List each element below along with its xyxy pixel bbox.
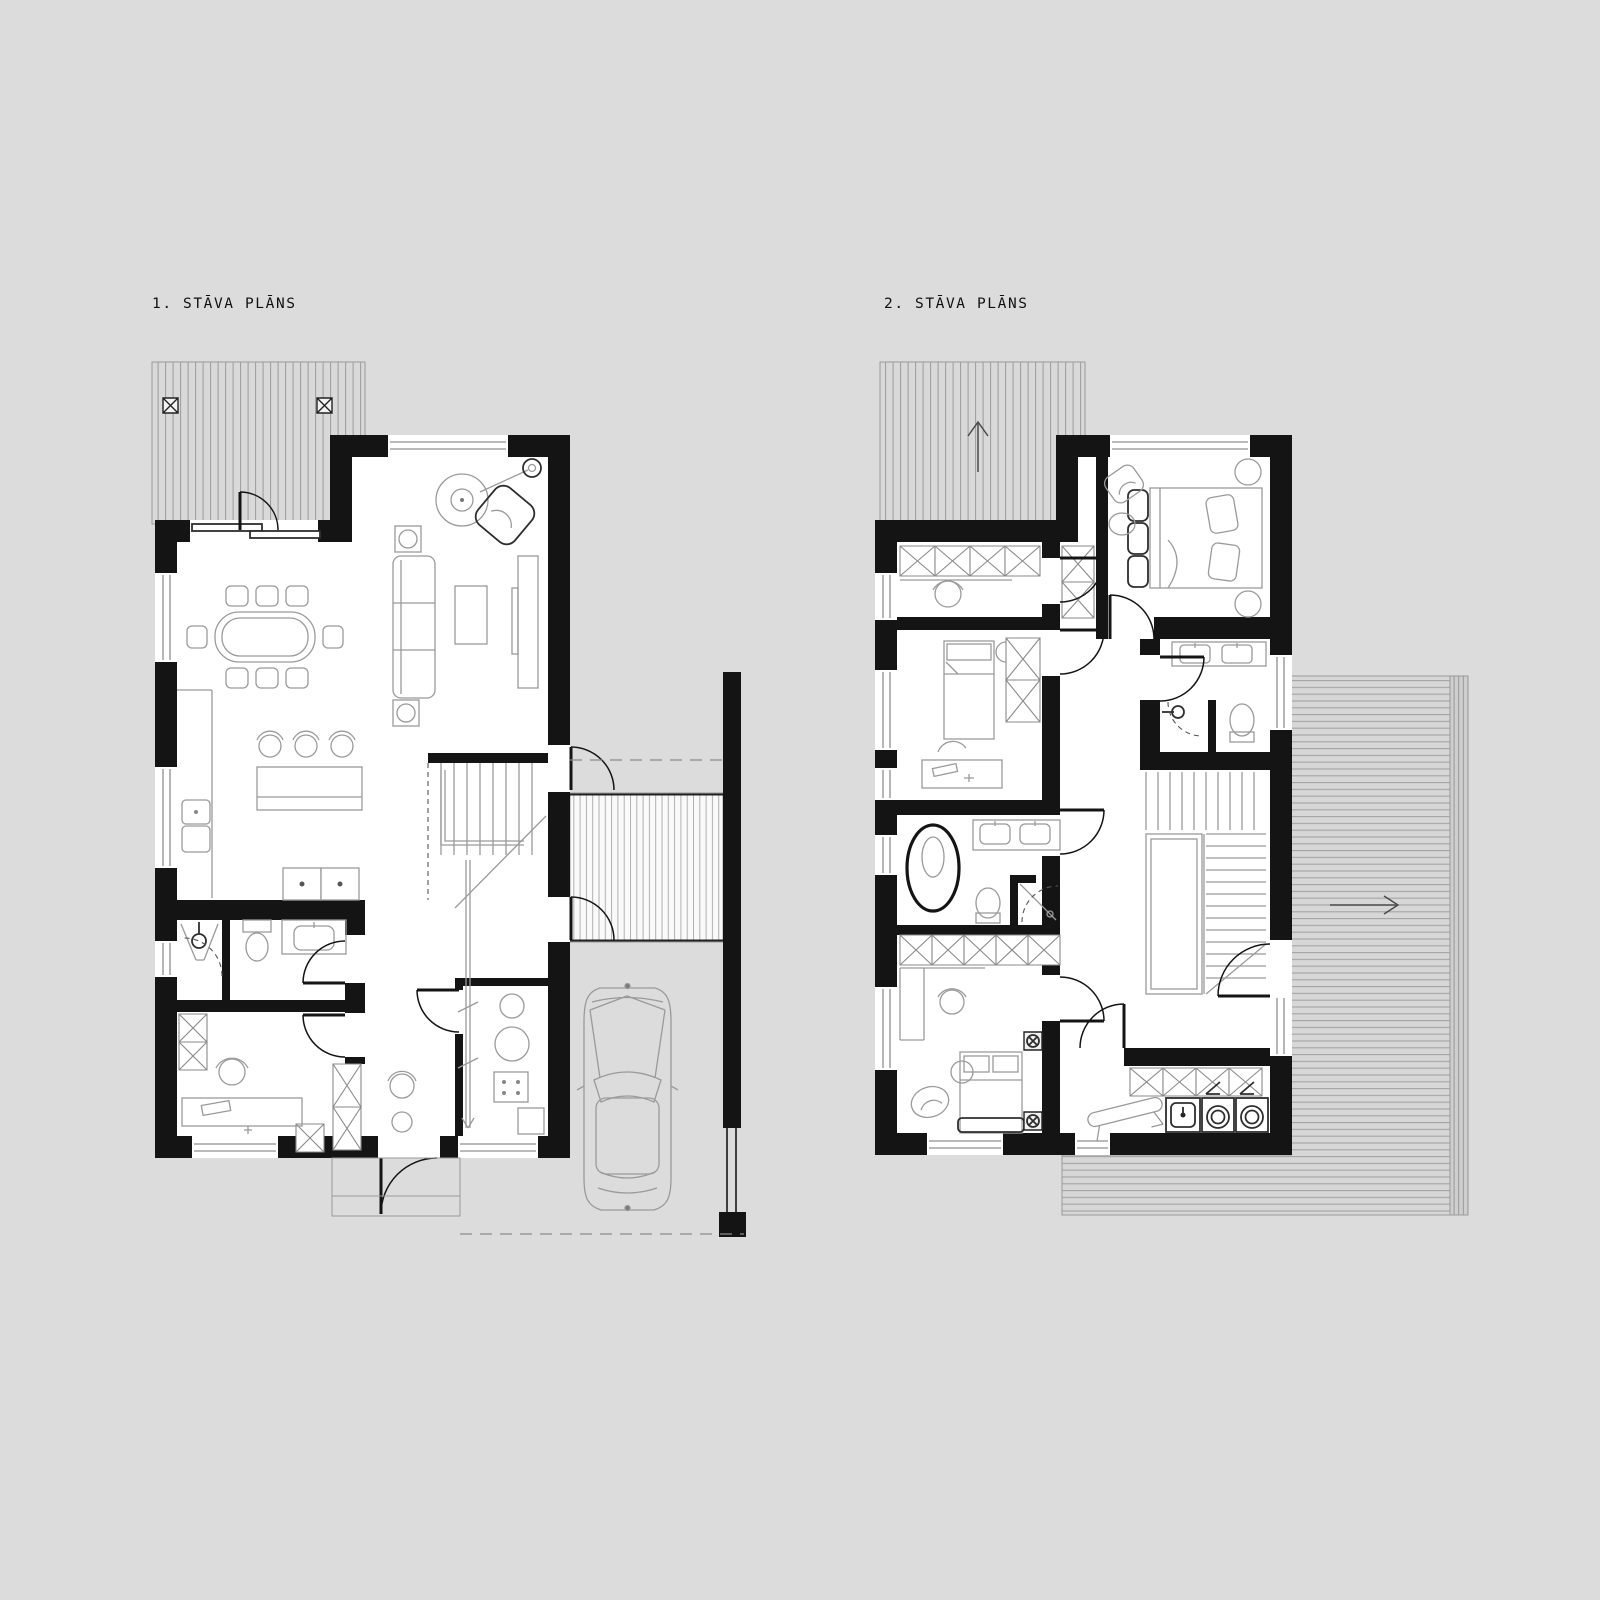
plan2 — [875, 362, 1468, 1215]
plan1-outer-wall-segment — [719, 672, 746, 1237]
plan1 — [152, 362, 746, 1237]
floor-plans-drawing — [0, 0, 1600, 1600]
plan1-entry-deck — [570, 793, 723, 942]
plan2-terrace-top — [880, 362, 1085, 522]
terrace-post-icon — [317, 398, 332, 413]
terrace-post-icon — [163, 398, 178, 413]
floor-plan-sheet: 1. STĀVA PLĀNS 2. STĀVA PLĀNS — [0, 0, 1600, 1600]
plan1-carport-car — [577, 984, 678, 1211]
plan1-entry-porch — [332, 1158, 460, 1216]
plan2-hall-wardrobe — [900, 935, 1060, 965]
